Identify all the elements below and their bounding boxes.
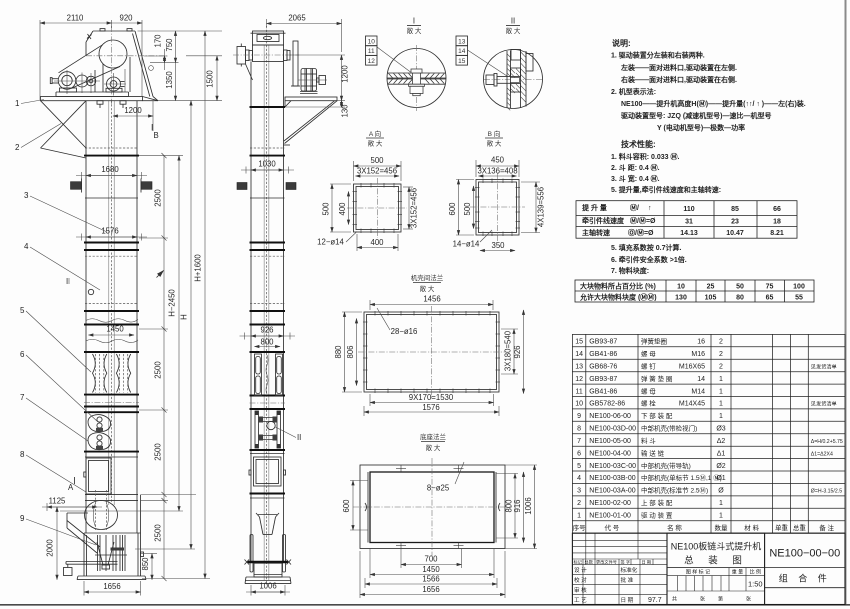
svg-text:1:50: 1:50 [748, 580, 763, 589]
svg-text:500: 500 [463, 202, 472, 216]
svg-text:共: 共 [672, 596, 677, 603]
svg-text:350: 350 [491, 241, 505, 250]
svg-text:驱动装置型号: JZQ (减速机型号)—速比—机型号: 驱动装置型号: JZQ (减速机型号)—速比—机型号 [621, 111, 772, 120]
svg-text:4: 4 [577, 475, 581, 482]
svg-text:NE100-06-00: NE100-06-00 [589, 413, 631, 420]
svg-text:13: 13 [458, 39, 466, 46]
svg-text:1566: 1566 [422, 575, 439, 584]
svg-text:2. 斗 距: 0.4 Ⓜ.: 2. 斗 距: 0.4 Ⓜ. [611, 163, 660, 172]
svg-text:名 称: 名 称 [667, 523, 682, 532]
svg-text:上 部 装 配: 上 部 装 配 [641, 498, 673, 507]
svg-text:1. 料斗容积: 0.033 Ⓜ.: 1. 料斗容积: 0.033 Ⓜ. [611, 152, 680, 161]
svg-text:弹簧垫圈: 弹簧垫圈 [641, 337, 667, 346]
svg-text:9: 9 [577, 413, 581, 420]
svg-text:75: 75 [766, 284, 774, 291]
svg-text:1: 1 [719, 376, 723, 383]
svg-text:6: 6 [577, 450, 581, 457]
svg-text:Ø1: Ø1 [716, 475, 725, 482]
svg-text:2500: 2500 [154, 189, 163, 207]
svg-text:12: 12 [368, 58, 376, 65]
svg-text:审 核: 审 核 [574, 586, 587, 594]
svg-text:重 量: 重 量 [732, 569, 743, 576]
svg-text:1. 驱动装置分左装和右装两种.: 1. 驱动装置分左装和右装两种. [611, 51, 705, 60]
svg-text:5: 5 [20, 306, 25, 315]
svg-text:II: II [511, 17, 515, 26]
svg-text:66: 66 [773, 206, 781, 213]
svg-text:14.13: 14.13 [680, 230, 698, 237]
svg-text:850: 850 [141, 557, 150, 571]
svg-text:4X139=556: 4X139=556 [537, 187, 546, 227]
svg-text:总 装 图: 总 装 图 [684, 555, 748, 567]
svg-text:10.47: 10.47 [726, 230, 744, 237]
svg-text:105: 105 [705, 295, 717, 302]
svg-text:5. 提升量,牵引件线速度和主轴转速:: 5. 提升量,牵引件线速度和主轴转速: [611, 185, 721, 194]
svg-text:设 计: 设 计 [574, 566, 587, 574]
svg-text:M16X65: M16X65 [679, 363, 705, 370]
svg-text:Ⓜ/Ⓜ=Ø: Ⓜ/Ⓜ=Ø [630, 216, 656, 225]
svg-text:单重: 单重 [775, 523, 789, 532]
svg-text:处数: 处数 [585, 558, 594, 565]
svg-text:M14: M14 [691, 388, 705, 395]
svg-text:50: 50 [736, 284, 744, 291]
svg-text:A: A [68, 483, 74, 492]
svg-text:NE100-03D-00: NE100-03D-00 [589, 426, 636, 433]
svg-text:Y (电动机型号)—极数—功率: Y (电动机型号)—极数—功率 [657, 123, 745, 132]
svg-text:NE100-04-00: NE100-04-00 [589, 450, 631, 457]
svg-text:3: 3 [577, 488, 581, 495]
svg-text:NE100−00−00: NE100−00−00 [769, 548, 840, 560]
svg-text:技术性能:: 技术性能: [621, 139, 656, 149]
svg-text:I: I [413, 17, 415, 26]
svg-text:1450: 1450 [422, 565, 440, 574]
svg-text:450: 450 [491, 156, 505, 165]
svg-text:600: 600 [342, 499, 351, 513]
svg-text:14: 14 [458, 48, 466, 55]
svg-text:2500: 2500 [154, 443, 163, 461]
svg-text:1680: 1680 [101, 165, 119, 174]
svg-text:8: 8 [577, 426, 581, 433]
svg-text:NE100板链斗式提升机: NE100板链斗式提升机 [671, 541, 762, 552]
svg-text:GB68-76: GB68-76 [589, 363, 617, 370]
svg-text:14: 14 [575, 351, 583, 358]
svg-text:代 号: 代 号 [604, 523, 619, 532]
svg-text:敞 大: 敞 大 [368, 139, 383, 148]
svg-text:926: 926 [513, 345, 522, 358]
svg-text:中部机壳(带导轨): 中部机壳(带导轨) [641, 461, 691, 470]
svg-text:1125: 1125 [49, 497, 66, 506]
svg-text:标记: 标记 [574, 558, 583, 565]
svg-text:弹 簧 垫 圈: 弹 簧 垫 圈 [641, 374, 672, 383]
svg-text:Δ=H/0.2+5.75: Δ=H/0.2+5.75 [811, 439, 843, 445]
svg-text:牵引件线速度: 牵引件线速度 [582, 216, 625, 225]
svg-text:序号: 序号 [573, 523, 587, 532]
svg-text:B: B [154, 131, 159, 140]
svg-text:1576: 1576 [101, 227, 118, 236]
svg-text:8−ø25: 8−ø25 [427, 484, 450, 493]
svg-text:GB93-87: GB93-87 [589, 376, 617, 383]
svg-text:13: 13 [575, 363, 583, 370]
svg-text:螺 钉: 螺 钉 [641, 361, 656, 370]
svg-text:1: 1 [15, 99, 20, 108]
svg-text:1006: 1006 [259, 582, 276, 591]
svg-text:11: 11 [575, 388, 582, 395]
svg-text:敞 大: 敞 大 [426, 443, 441, 452]
svg-text:3X152=456: 3X152=456 [357, 167, 397, 176]
svg-text:NE100-03A-00: NE100-03A-00 [589, 488, 635, 495]
svg-text:中部机壳(标准节 2.5Ⓜ): 中部机壳(标准节 2.5Ⓜ) [641, 486, 708, 495]
svg-text:2: 2 [577, 500, 581, 507]
svg-text:GB93-87: GB93-87 [589, 339, 617, 346]
svg-text:1006: 1006 [524, 497, 533, 514]
svg-text:NE100-03B-00: NE100-03B-00 [589, 475, 635, 482]
svg-text:1656: 1656 [103, 582, 120, 591]
svg-text:3: 3 [24, 191, 29, 200]
svg-text:65: 65 [766, 295, 774, 302]
svg-text:9: 9 [20, 514, 25, 523]
svg-text:H+1600: H+1600 [194, 254, 203, 282]
svg-text:12: 12 [575, 376, 583, 383]
svg-text:2: 2 [719, 351, 723, 358]
svg-text:16: 16 [697, 339, 705, 346]
svg-text:2: 2 [719, 339, 723, 346]
svg-text:提 升 量: 提 升 量 [581, 203, 607, 212]
svg-text:M16: M16 [691, 351, 705, 358]
svg-text:11: 11 [368, 48, 375, 55]
svg-text:驱 动 装 置: 驱 动 装 置 [641, 511, 673, 520]
svg-text:25: 25 [707, 284, 715, 291]
svg-text:GB41-86: GB41-86 [589, 388, 617, 395]
svg-text:B 向: B 向 [488, 129, 501, 138]
svg-text:6. 牵引件安全系数 >1倍.: 6. 牵引件安全系数 >1倍. [611, 255, 687, 264]
svg-text:A 向: A 向 [369, 129, 381, 138]
svg-text:下 部 装 配: 下 部 装 配 [641, 411, 673, 420]
svg-text:3. 斗 宽: 0.4 Ⓜ.: 3. 斗 宽: 0.4 Ⓜ. [611, 174, 660, 183]
svg-text:H−2450: H−2450 [168, 289, 177, 317]
svg-text:806: 806 [346, 345, 355, 358]
svg-text:左装——面对进料口,驱动装置在左侧.: 左装——面对进料口,驱动装置在左侧. [620, 63, 737, 72]
svg-text:926: 926 [260, 326, 273, 335]
svg-text:1: 1 [719, 388, 723, 395]
svg-text:敞 大: 敞 大 [487, 139, 502, 148]
svg-text:校 对: 校 对 [574, 576, 587, 584]
svg-text:Δ2: Δ2 [717, 438, 726, 445]
svg-text:1030: 1030 [258, 160, 276, 169]
svg-text:日 期: 日 期 [621, 597, 634, 604]
svg-text:2. 机型表示法:: 2. 机型表示法: [611, 87, 656, 96]
svg-text:允许大块物料块度 (ⓂⓂ): 允许大块物料块度 (ⓂⓂ) [579, 293, 657, 302]
svg-text:97.7: 97.7 [648, 597, 662, 604]
svg-text:10: 10 [368, 39, 376, 46]
svg-text:1450: 1450 [106, 325, 124, 334]
svg-text:31: 31 [685, 219, 693, 226]
svg-text:880: 880 [334, 345, 343, 359]
svg-text:说明:: 说明: [612, 38, 631, 48]
svg-text:底座法兰: 底座法兰 [420, 432, 447, 441]
svg-text:750: 750 [165, 38, 174, 52]
svg-text:14−ø14: 14−ø14 [453, 240, 480, 249]
svg-text:张: 张 [700, 596, 705, 603]
svg-text:400: 400 [338, 202, 347, 216]
svg-text:5. 填充系数按 0.7计算.: 5. 填充系数按 0.7计算. [611, 243, 681, 252]
svg-text:见发货清单: 见发货清单 [811, 362, 837, 370]
svg-text:9X170=1530: 9X170=1530 [409, 393, 454, 402]
svg-text:3X180=540: 3X180=540 [504, 330, 513, 371]
svg-text:100: 100 [793, 284, 805, 291]
svg-text:比 例: 比 例 [750, 569, 761, 576]
svg-text:7: 7 [577, 438, 581, 445]
svg-text:GB5782-86: GB5782-86 [589, 401, 625, 408]
svg-text:中部机壳(单标节 1.5Ⓜ,1 Ⓜ): 中部机壳(单标节 1.5Ⓜ,1 Ⓜ) [641, 473, 722, 482]
svg-text:右装——面对进料口,驱动装置在右侧.: 右装——面对进料口,驱动装置在右侧. [620, 75, 737, 84]
svg-text:80: 80 [736, 295, 744, 302]
svg-text:数量: 数量 [715, 523, 729, 532]
svg-text:标准化: 标准化 [621, 566, 638, 574]
svg-text:NE100-01-00: NE100-01-00 [589, 513, 631, 520]
svg-text:料 斗: 料 斗 [641, 436, 656, 445]
svg-text:更改文件号: 更改文件号 [596, 558, 617, 565]
svg-text:1200: 1200 [341, 65, 350, 83]
svg-text:备 注: 备 注 [819, 523, 834, 532]
svg-text:700: 700 [424, 555, 438, 564]
svg-text:NE100——提升机高度H(Ⓜ)——提升量(↑↑/ ↑ )—: NE100——提升机高度H(Ⓜ)——提升量(↑↑/ ↑ )——左(右)装. [621, 99, 806, 108]
svg-text:8: 8 [20, 450, 25, 459]
svg-text:1576: 1576 [422, 403, 439, 412]
svg-text:GB41-86: GB41-86 [589, 351, 617, 358]
svg-text:10: 10 [677, 284, 685, 291]
svg-text:6: 6 [20, 350, 25, 359]
svg-text:110: 110 [683, 206, 694, 213]
svg-text:28−ø16: 28−ø16 [391, 327, 418, 336]
svg-text:130: 130 [341, 104, 350, 118]
svg-text:Δ1=Δ2X4: Δ1=Δ2X4 [811, 451, 833, 457]
svg-text:NE100-02-00: NE100-02-00 [589, 500, 631, 507]
svg-text:15: 15 [575, 339, 583, 346]
svg-text:大块物料所占百分比 (%): 大块物料所占百分比 (%) [580, 282, 656, 291]
svg-text:2065: 2065 [288, 14, 306, 23]
svg-text:1656: 1656 [422, 585, 439, 594]
svg-text:3X152=456: 3X152=456 [410, 188, 419, 228]
svg-text:170: 170 [154, 34, 163, 48]
svg-text:4: 4 [24, 242, 29, 251]
svg-text:12−ø14: 12−ø14 [317, 238, 344, 247]
svg-text:见发货清单: 见发货清单 [811, 400, 837, 408]
svg-text:400: 400 [370, 238, 384, 247]
svg-text:2110: 2110 [67, 14, 84, 23]
svg-text:15: 15 [458, 58, 466, 65]
svg-text:签 字: 签 字 [621, 558, 631, 564]
svg-text:3X136=408: 3X136=408 [477, 167, 517, 176]
svg-text:螺 栓: 螺 栓 [641, 399, 656, 408]
svg-text:输 送 链: 输 送 链 [641, 448, 665, 457]
svg-text:2: 2 [15, 143, 20, 152]
svg-text:2: 2 [719, 363, 723, 370]
svg-text:1: 1 [719, 401, 723, 408]
svg-text:920: 920 [119, 14, 133, 23]
svg-text:NE100-05-00: NE100-05-00 [589, 438, 631, 445]
svg-text:工 艺: 工 艺 [574, 597, 587, 604]
svg-text:916: 916 [513, 499, 522, 512]
svg-text:NE100-03C-00: NE100-03C-00 [589, 463, 636, 470]
svg-text:1350: 1350 [165, 71, 174, 89]
svg-text:第: 第 [718, 596, 723, 603]
svg-text:敞 大: 敞 大 [420, 284, 435, 293]
svg-text:18: 18 [773, 219, 781, 226]
svg-text:图 样 标 记: 图 样 标 记 [686, 569, 710, 576]
svg-text:7. 物料块度:: 7. 物料块度: [611, 266, 649, 275]
svg-text:1: 1 [719, 413, 723, 420]
svg-text:Δ1: Δ1 [717, 450, 726, 457]
svg-text:2000: 2000 [46, 539, 55, 557]
svg-text:Ⓜ/: Ⓜ/ [630, 203, 639, 212]
svg-text:600: 600 [448, 202, 457, 216]
svg-text:23: 23 [731, 219, 739, 226]
svg-text:主轴转速: 主轴转速 [582, 228, 610, 237]
svg-text:M14X45: M14X45 [679, 401, 705, 408]
svg-text:85: 85 [731, 206, 739, 213]
svg-text:机壳间法兰: 机壳间法兰 [411, 273, 444, 282]
svg-text:↑: ↑ [648, 205, 652, 212]
svg-text:8.21: 8.21 [770, 230, 784, 237]
svg-text:组 合 件: 组 合 件 [779, 573, 831, 584]
svg-text:10: 10 [575, 401, 583, 408]
svg-text:Ø3: Ø3 [716, 426, 725, 433]
svg-text:14: 14 [697, 376, 705, 383]
svg-text:I: I [66, 277, 68, 286]
svg-text:螺 母: 螺 母 [641, 349, 656, 358]
svg-text:II: II [297, 433, 301, 442]
svg-text:1: 1 [577, 513, 581, 520]
svg-text:2500: 2500 [154, 361, 163, 379]
svg-text:H: H [180, 314, 189, 320]
svg-text:7: 7 [20, 393, 25, 402]
svg-text:螺 母: 螺 母 [641, 386, 656, 395]
svg-text:1200: 1200 [124, 106, 142, 115]
svg-text:张: 张 [746, 596, 751, 603]
svg-text:敞 大: 敞 大 [407, 26, 422, 35]
svg-text:800: 800 [260, 338, 274, 347]
svg-text:1: 1 [719, 500, 723, 507]
svg-text:5: 5 [577, 463, 581, 470]
svg-text:Ⓞ/Ⓜ=Ø: Ⓞ/Ⓜ=Ø [628, 228, 654, 237]
svg-text:Ø=H-3.15/2.5: Ø=H-3.15/2.5 [811, 489, 842, 495]
svg-text:材 料: 材 料 [744, 523, 759, 532]
svg-text:批 准: 批 准 [621, 576, 634, 584]
svg-text:总重: 总重 [793, 523, 807, 532]
svg-text:55: 55 [795, 295, 803, 302]
svg-text:中部机壳(带检视门): 中部机壳(带检视门) [641, 424, 697, 433]
svg-text:130: 130 [675, 295, 687, 302]
svg-text:Ø2: Ø2 [716, 463, 725, 470]
svg-text:Ø: Ø [718, 488, 724, 495]
svg-text:500: 500 [370, 156, 384, 165]
svg-text:2500: 2500 [154, 524, 163, 542]
svg-text:敞 大: 敞 大 [506, 26, 521, 35]
svg-text:1500: 1500 [206, 70, 215, 88]
svg-text:1456: 1456 [423, 295, 440, 304]
svg-text:500: 500 [322, 202, 331, 216]
svg-text:1: 1 [719, 513, 723, 520]
